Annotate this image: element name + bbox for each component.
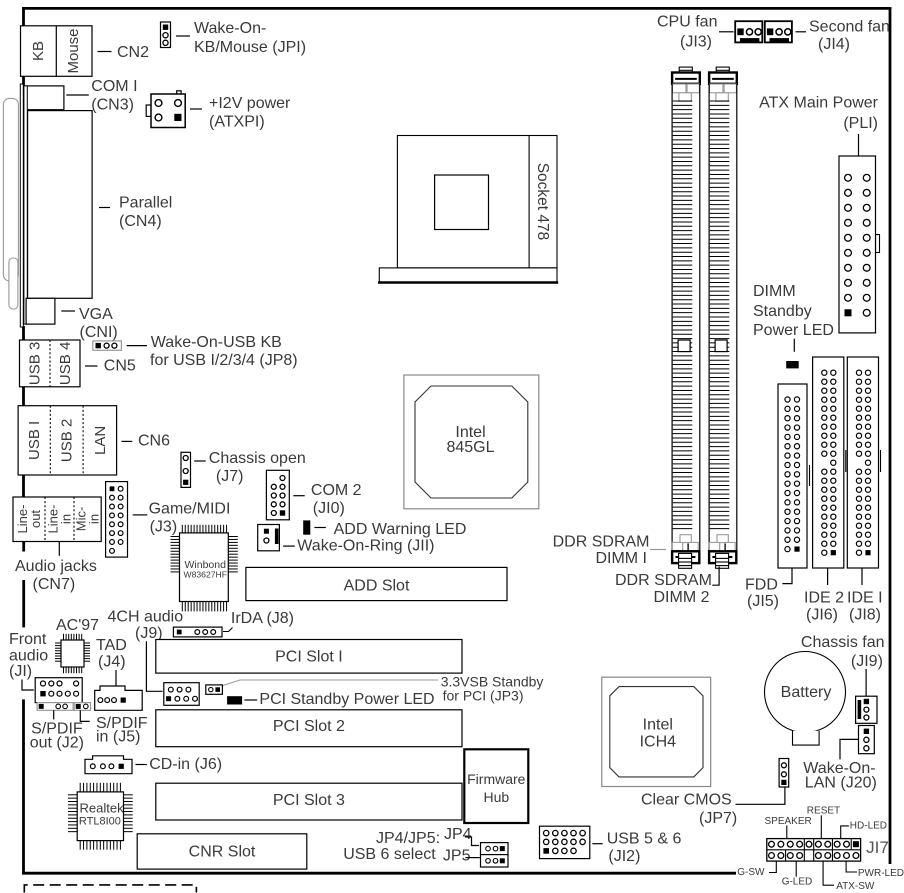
svg-text:(J4): (J4) bbox=[98, 654, 126, 671]
svg-text:USB 5 & 6: USB 5 & 6 bbox=[607, 830, 682, 847]
svg-text:(J7): (J7) bbox=[216, 468, 244, 485]
svg-text:ADD Slot: ADD Slot bbox=[344, 577, 410, 594]
svg-text:(JI5): (JI5) bbox=[747, 593, 779, 610]
svg-text:KB/Mouse (JPI): KB/Mouse (JPI) bbox=[194, 39, 306, 56]
svg-text:FDD: FDD bbox=[745, 577, 778, 594]
svg-text:CN6: CN6 bbox=[138, 433, 170, 450]
svg-text:PCI Slot 2: PCI Slot 2 bbox=[273, 718, 345, 735]
svg-text:Socket 478: Socket 478 bbox=[534, 163, 551, 241]
svg-text:Chassis fan: Chassis fan bbox=[801, 634, 885, 651]
svg-text:IDE I: IDE I bbox=[847, 590, 883, 607]
svg-text:(JI4): (JI4) bbox=[818, 36, 850, 53]
svg-text:IrDA (J8): IrDA (J8) bbox=[231, 610, 294, 627]
svg-text:Wake-On-: Wake-On- bbox=[194, 20, 266, 37]
svg-text:in: in bbox=[87, 514, 102, 524]
svg-text:+I2V power: +I2V power bbox=[209, 95, 291, 112]
svg-text:COM I: COM I bbox=[91, 78, 137, 95]
svg-text:Parallel: Parallel bbox=[119, 195, 172, 212]
svg-text:(JP7): (JP7) bbox=[699, 810, 737, 827]
svg-text:PCI Slot I: PCI Slot I bbox=[275, 648, 343, 665]
svg-text:(JI0): (JI0) bbox=[313, 500, 345, 517]
svg-text:(JI6): (JI6) bbox=[806, 607, 838, 624]
svg-text:G-LED: G-LED bbox=[782, 876, 813, 887]
svg-text:IDE 2: IDE 2 bbox=[804, 590, 844, 607]
svg-text:USB 3: USB 3 bbox=[27, 342, 44, 385]
svg-text:Second fan: Second fan bbox=[809, 18, 890, 35]
svg-text:out (J2): out (J2) bbox=[30, 734, 84, 751]
svg-text:(JI8): (JI8) bbox=[849, 607, 881, 624]
svg-text:DDR SDRAM: DDR SDRAM bbox=[553, 533, 650, 550]
svg-text:RESET: RESET bbox=[807, 806, 840, 817]
svg-text:JP4: JP4 bbox=[444, 826, 472, 843]
svg-text:for PCI (JP3): for PCI (JP3) bbox=[443, 688, 524, 704]
svg-text:(J3): (J3) bbox=[150, 518, 178, 535]
svg-text:ATX Main Power: ATX Main Power bbox=[759, 95, 879, 112]
svg-text:HD-LED: HD-LED bbox=[850, 820, 887, 831]
svg-text:USB 6 select: USB 6 select bbox=[343, 846, 436, 863]
svg-text:Wake-On-Ring (JII): Wake-On-Ring (JII) bbox=[297, 538, 434, 555]
svg-text:(JI9): (JI9) bbox=[851, 653, 883, 670]
svg-text:ATX-SW: ATX-SW bbox=[836, 881, 875, 892]
svg-text:DDR SDRAM: DDR SDRAM bbox=[615, 572, 712, 589]
svg-text:(CN7): (CN7) bbox=[33, 576, 76, 593]
svg-text:(PLI): (PLI) bbox=[843, 115, 878, 132]
svg-text:Chassis open: Chassis open bbox=[209, 450, 306, 467]
svg-text:PWR-LED: PWR-LED bbox=[858, 868, 904, 879]
svg-text:Hub: Hub bbox=[483, 789, 509, 805]
svg-text:Standby: Standby bbox=[753, 303, 812, 320]
svg-text:PCI Slot 3: PCI Slot 3 bbox=[273, 792, 345, 809]
svg-text:PCI Standby Power LED: PCI Standby Power LED bbox=[259, 691, 434, 708]
svg-text:DIMM 2: DIMM 2 bbox=[654, 589, 710, 606]
svg-text:CNR Slot: CNR Slot bbox=[189, 844, 256, 861]
svg-text:RTL8I00: RTL8I00 bbox=[79, 816, 121, 828]
svg-text:4CH audio: 4CH audio bbox=[108, 609, 184, 626]
svg-text:JI7: JI7 bbox=[866, 838, 889, 857]
svg-text:KB: KB bbox=[30, 41, 47, 61]
svg-text:audio: audio bbox=[9, 647, 48, 664]
svg-text:ICH4: ICH4 bbox=[640, 733, 677, 750]
svg-text:Realtek: Realtek bbox=[80, 800, 125, 815]
svg-text:USB 4: USB 4 bbox=[57, 342, 74, 385]
svg-text:Wake-On-USB KB: Wake-On-USB KB bbox=[151, 334, 282, 351]
svg-text:CN2: CN2 bbox=[117, 44, 149, 61]
svg-text:Intel: Intel bbox=[643, 717, 673, 734]
svg-text:(CNI): (CNI) bbox=[80, 324, 118, 341]
svg-text:CD-in (J6): CD-in (J6) bbox=[149, 756, 222, 773]
svg-text:G-SW: G-SW bbox=[737, 867, 765, 878]
svg-text:ADD Warning LED: ADD Warning LED bbox=[334, 521, 467, 538]
svg-text:USB I: USB I bbox=[26, 421, 43, 460]
svg-text:Mouse: Mouse bbox=[65, 28, 82, 73]
svg-text:(JI): (JI) bbox=[9, 663, 32, 680]
svg-text:out: out bbox=[28, 510, 43, 528]
svg-text:in: in bbox=[59, 514, 74, 524]
svg-text:Power LED: Power LED bbox=[753, 322, 834, 339]
svg-text:for USB I/2/3/4 (JP8): for USB I/2/3/4 (JP8) bbox=[150, 352, 298, 369]
svg-text:(JI3): (JI3) bbox=[680, 33, 712, 50]
svg-text:Firmware: Firmware bbox=[467, 771, 526, 787]
svg-text:845GL: 845GL bbox=[446, 439, 494, 456]
svg-text:Clear CMOS: Clear CMOS bbox=[641, 792, 732, 809]
svg-text:in (J5): in (J5) bbox=[96, 728, 140, 745]
svg-text:DIMM I: DIMM I bbox=[595, 550, 647, 567]
svg-text:W83627HF: W83627HF bbox=[184, 570, 227, 580]
svg-text:(JI2): (JI2) bbox=[608, 848, 640, 865]
svg-text:Front: Front bbox=[9, 631, 47, 648]
svg-text:USB 2: USB 2 bbox=[59, 419, 76, 462]
svg-text:COM 2: COM 2 bbox=[311, 482, 362, 499]
svg-text:CN5: CN5 bbox=[104, 358, 136, 375]
svg-text:JP5: JP5 bbox=[443, 848, 471, 865]
svg-text:Game/MIDI: Game/MIDI bbox=[149, 500, 231, 517]
svg-text:(ATXPI): (ATXPI) bbox=[209, 114, 265, 131]
svg-text:LAN (J20): LAN (J20) bbox=[805, 774, 877, 791]
svg-text:DIMM: DIMM bbox=[753, 283, 796, 300]
svg-text:JP4/JP5:: JP4/JP5: bbox=[376, 830, 440, 847]
svg-text:LAN: LAN bbox=[92, 426, 109, 455]
svg-text:(CN3): (CN3) bbox=[91, 96, 134, 113]
svg-text:CPU fan: CPU fan bbox=[657, 14, 717, 31]
svg-text:Audio jacks: Audio jacks bbox=[15, 558, 97, 575]
svg-text:AC'97: AC'97 bbox=[56, 617, 99, 634]
svg-text:Battery: Battery bbox=[781, 684, 832, 701]
svg-text:SPEAKER: SPEAKER bbox=[765, 816, 812, 827]
svg-text:VGA: VGA bbox=[79, 306, 113, 323]
svg-text:TAD: TAD bbox=[96, 637, 127, 654]
svg-text:(CN4): (CN4) bbox=[119, 213, 162, 230]
